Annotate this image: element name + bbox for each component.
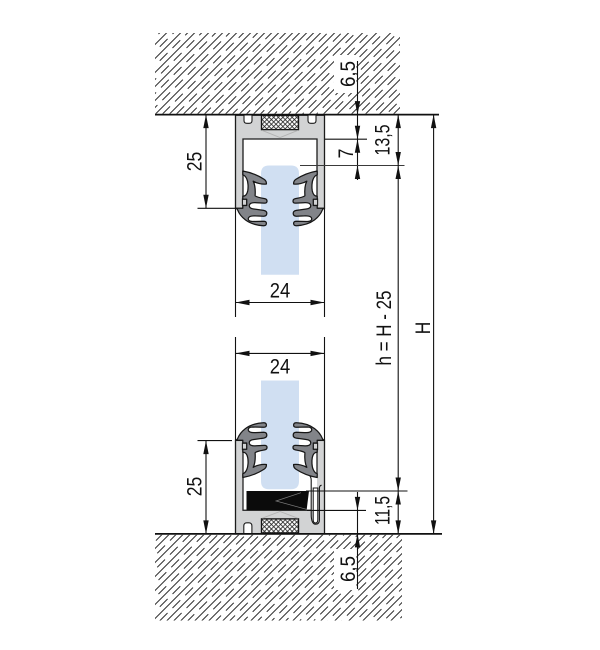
svg-text:24: 24 bbox=[270, 279, 291, 303]
svg-text:11,5: 11,5 bbox=[371, 496, 395, 525]
svg-text:6,5: 6,5 bbox=[336, 556, 360, 582]
svg-text:13,5: 13,5 bbox=[371, 124, 395, 155]
svg-text:h = H - 25: h = H - 25 bbox=[372, 290, 396, 365]
svg-text:25: 25 bbox=[183, 152, 207, 172]
svg-text:6,5: 6,5 bbox=[336, 61, 360, 87]
svg-text:H: H bbox=[411, 322, 435, 335]
svg-text:25: 25 bbox=[183, 477, 207, 497]
svg-text:7: 7 bbox=[334, 149, 358, 159]
svg-text:24: 24 bbox=[270, 355, 291, 379]
